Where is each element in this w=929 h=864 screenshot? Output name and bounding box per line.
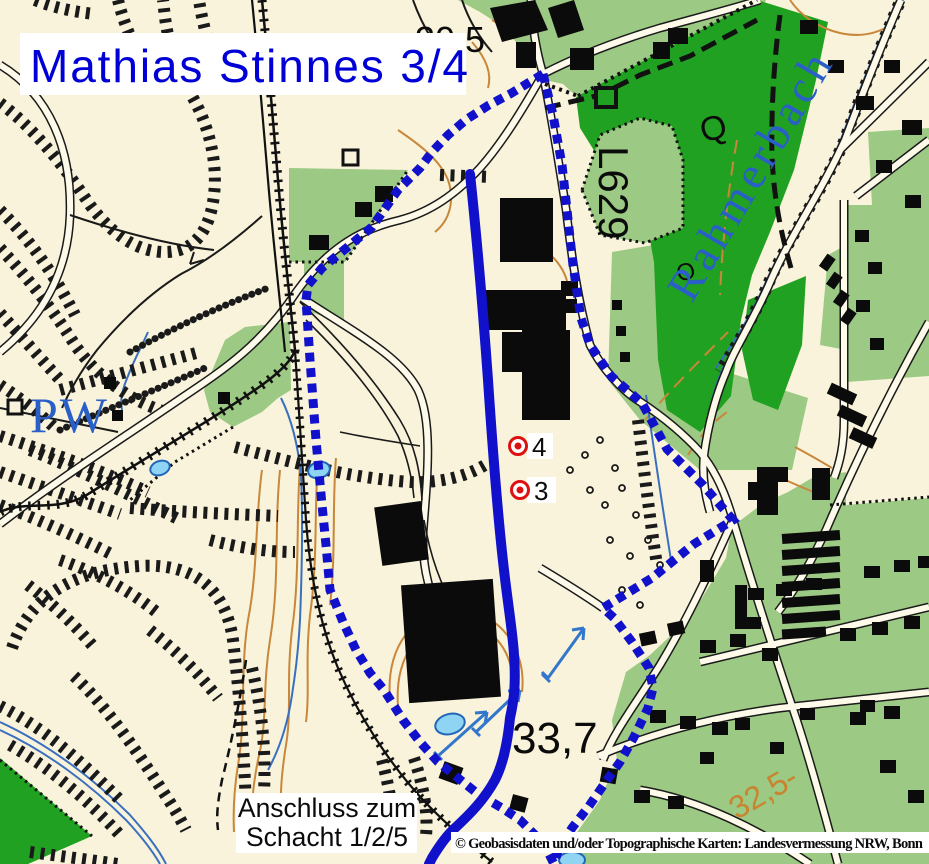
svg-text:3: 3 (534, 476, 548, 506)
svg-text:L629: L629 (590, 146, 637, 239)
svg-text:4: 4 (532, 432, 546, 462)
svg-text:33,7: 33,7 (512, 714, 598, 763)
svg-text:© Geobasisdaten und/oder Topog: © Geobasisdaten und/oder Topographische … (455, 836, 923, 852)
svg-text:Mathias Stinnes 3/4: Mathias Stinnes 3/4 (30, 40, 468, 92)
svg-text:Schacht 1/2/5: Schacht 1/2/5 (246, 822, 408, 852)
svg-text:Anschluss zum: Anschluss zum (238, 793, 416, 823)
svg-text:PW: PW (30, 387, 109, 443)
